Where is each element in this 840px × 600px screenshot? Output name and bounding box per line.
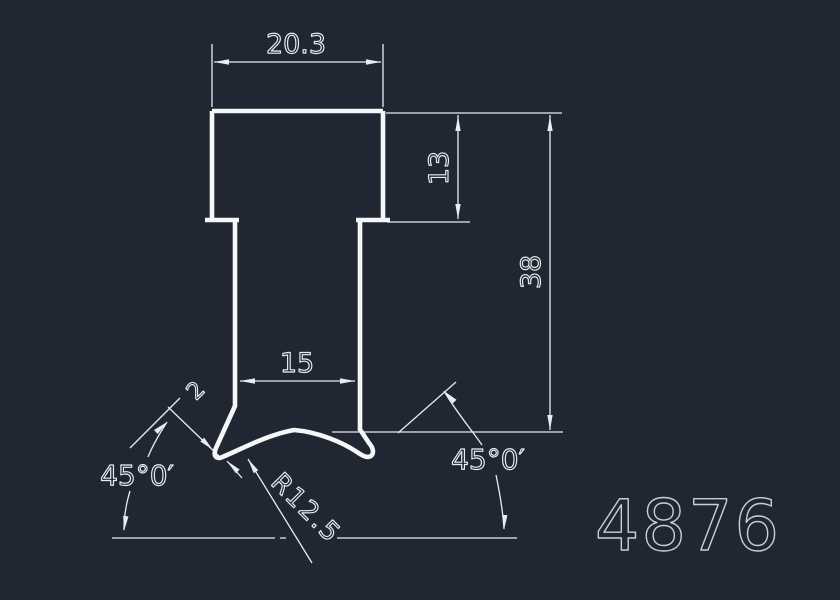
part-number-label: 4876 — [595, 485, 781, 567]
dim-stem-width-label: 15 — [280, 348, 314, 379]
dim-top-width-label: 20.3 — [266, 29, 326, 60]
dim-left-angle-label: 45°0′ — [100, 459, 174, 492]
cad-drawing: 20.3 13 38 15 45°0′ 45°0′ 2 R12.5 4876 — [0, 0, 840, 600]
dim-overall-height-label: 38 — [516, 255, 547, 289]
dim-head-height-label: 13 — [424, 151, 455, 185]
dim-right-angle-label: 45°0′ — [451, 443, 525, 476]
part-number: 4876 — [595, 485, 781, 567]
cad-viewport[interactable]: 20.3 13 38 15 45°0′ 45°0′ 2 R12.5 4876 — [0, 0, 840, 600]
